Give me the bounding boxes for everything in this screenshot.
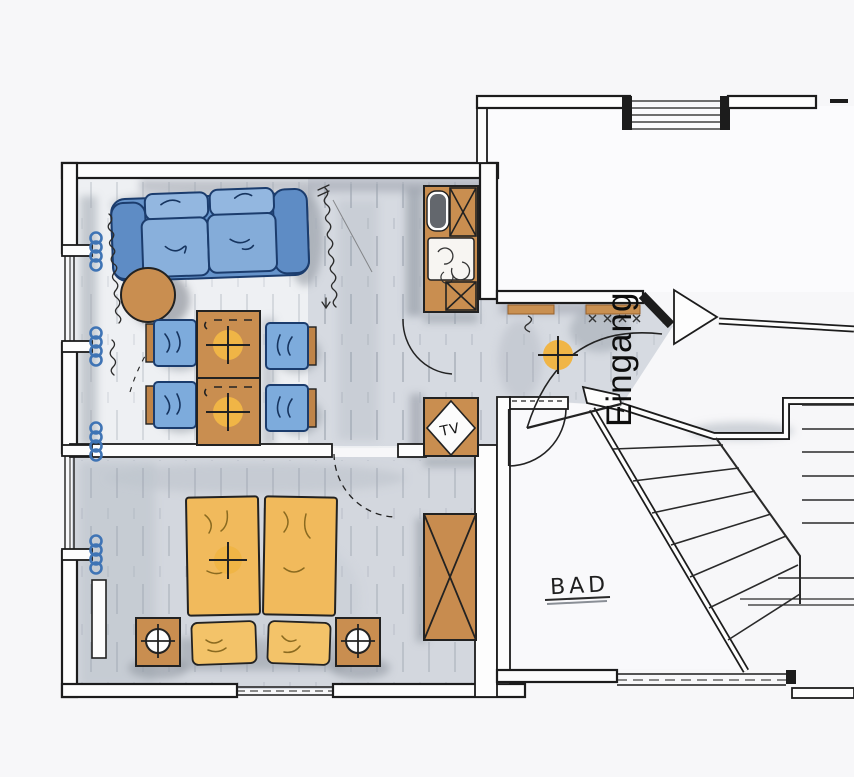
tv-cabinet: TV	[424, 398, 478, 456]
upper-room-floor	[487, 106, 854, 292]
bedroom-window	[237, 685, 333, 697]
nightstand-left	[136, 618, 180, 666]
sofa	[110, 187, 309, 282]
kitchen-east-wall	[480, 163, 497, 299]
divider-wall-segment	[398, 444, 426, 457]
chair	[266, 385, 316, 431]
left-wall-upper	[62, 163, 77, 253]
bathroom-floor	[510, 404, 745, 669]
bathroom-window	[617, 674, 786, 685]
bedroom-bathroom-wall	[475, 445, 497, 697]
nightstand-right	[336, 618, 380, 666]
bathroom-bottom-wall	[497, 670, 617, 682]
wall-dash-fade	[830, 99, 848, 103]
outer-wall-right-stub	[792, 688, 854, 698]
side-table	[121, 268, 175, 322]
upper-room-top-wall	[477, 96, 630, 108]
entrance-label: Eingang	[600, 292, 639, 427]
tall-cabinet	[92, 580, 106, 658]
stair-rail	[716, 438, 800, 604]
living-top-wall	[62, 163, 498, 178]
sofa-armrest-right	[272, 189, 309, 274]
upper-room-top-wall-right	[728, 96, 816, 108]
kitchen-sink	[427, 191, 449, 231]
floor-plan-canvas: TV	[0, 0, 854, 777]
entrance-jamb-arrow	[674, 290, 717, 344]
doormat-shelf	[508, 305, 554, 314]
sofa-back-cushion	[209, 188, 274, 216]
bathroom-label: BAD	[549, 572, 609, 600]
bathroom-wall-cap	[786, 670, 796, 684]
upper-room-left-wall	[477, 100, 487, 163]
kitchenette	[424, 186, 478, 312]
wardrobe	[424, 514, 476, 640]
sofa-back-cushion	[145, 192, 209, 220]
bed-right	[263, 496, 337, 615]
left-wall-middle	[62, 343, 77, 453]
pillow-left	[191, 621, 256, 665]
left-wall-lower	[62, 551, 77, 697]
chair	[146, 382, 196, 428]
chair	[266, 323, 316, 369]
pillow-right	[267, 621, 330, 665]
floor-plan-drawing: TV	[0, 0, 854, 777]
chair	[146, 320, 196, 366]
bedroom-bottom-wall-left	[62, 684, 237, 697]
kitchen-stove	[428, 238, 474, 283]
